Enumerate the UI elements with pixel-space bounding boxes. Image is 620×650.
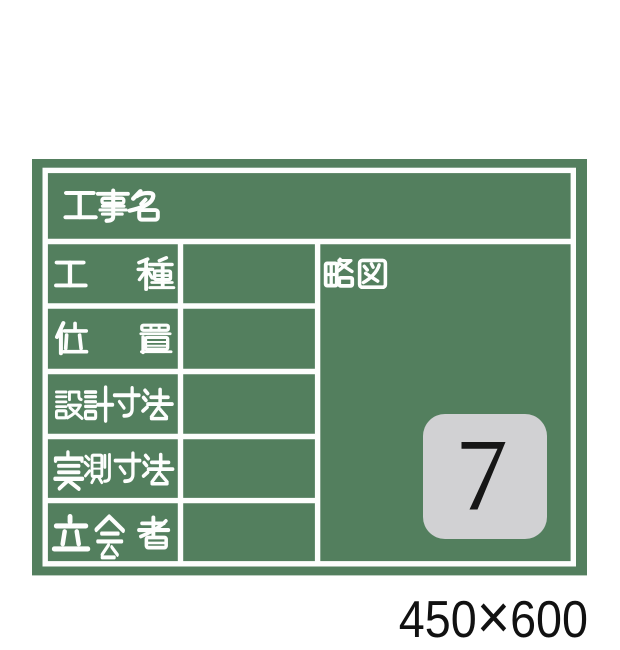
svg-text:450×600: 450×600 <box>399 582 588 650</box>
